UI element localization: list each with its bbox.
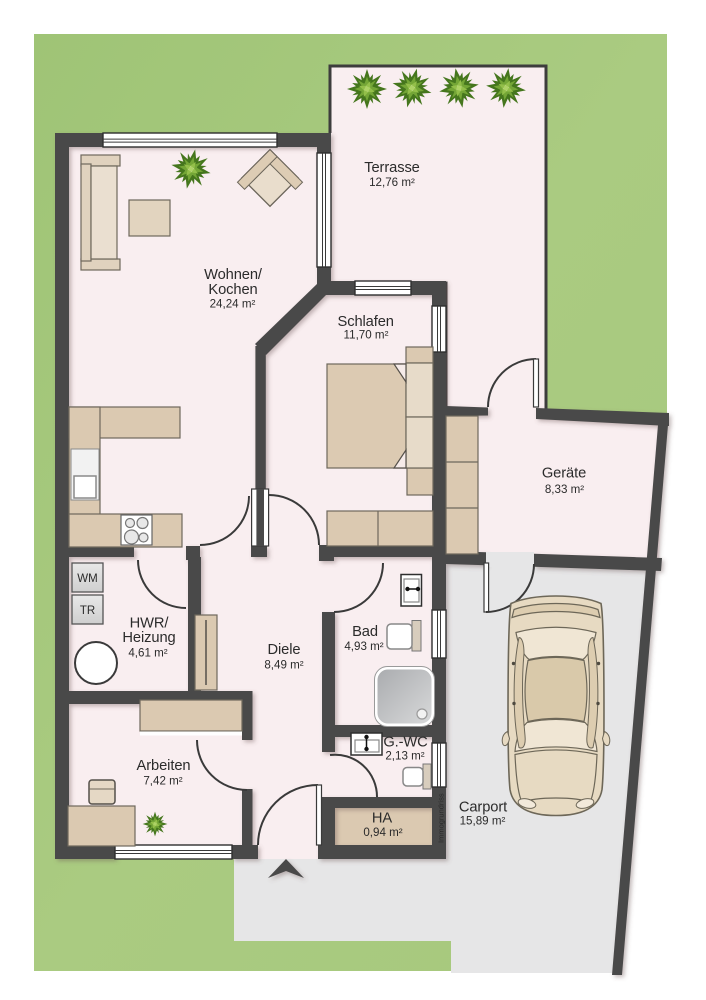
svg-text:Geräte: Geräte [542, 466, 586, 482]
svg-text:Immogrundriss: Immogrundriss [437, 793, 446, 843]
svg-text:7,42 m²: 7,42 m² [143, 775, 182, 788]
svg-text:8,49 m²: 8,49 m² [264, 659, 303, 672]
svg-text:0,94 m²: 0,94 m² [363, 826, 402, 839]
svg-text:Terrasse: Terrasse [364, 160, 420, 176]
svg-text:12,76 m²: 12,76 m² [369, 176, 415, 189]
svg-text:2,13 m²: 2,13 m² [385, 750, 424, 763]
svg-text:Arbeiten: Arbeiten [137, 758, 191, 774]
svg-text:Kochen: Kochen [208, 282, 257, 298]
svg-text:Wohnen/: Wohnen/ [204, 267, 263, 283]
svg-text:11,70 m²: 11,70 m² [344, 329, 389, 342]
svg-text:HA: HA [372, 811, 393, 827]
svg-text:G.-WC: G.-WC [383, 735, 428, 751]
svg-text:4,61 m²: 4,61 m² [128, 647, 167, 660]
svg-text:TR: TR [80, 605, 95, 617]
svg-text:Diele: Diele [268, 642, 301, 658]
svg-text:Heizung: Heizung [122, 630, 175, 646]
svg-text:24,24 m²: 24,24 m² [210, 298, 256, 311]
svg-text:4,93 m²: 4,93 m² [344, 640, 383, 653]
svg-text:Bad: Bad [352, 624, 378, 640]
svg-text:Carport: Carport [459, 800, 507, 816]
svg-text:15,89 m²: 15,89 m² [460, 815, 506, 828]
svg-text:8,33 m²: 8,33 m² [545, 483, 584, 496]
svg-text:WM: WM [77, 573, 97, 585]
